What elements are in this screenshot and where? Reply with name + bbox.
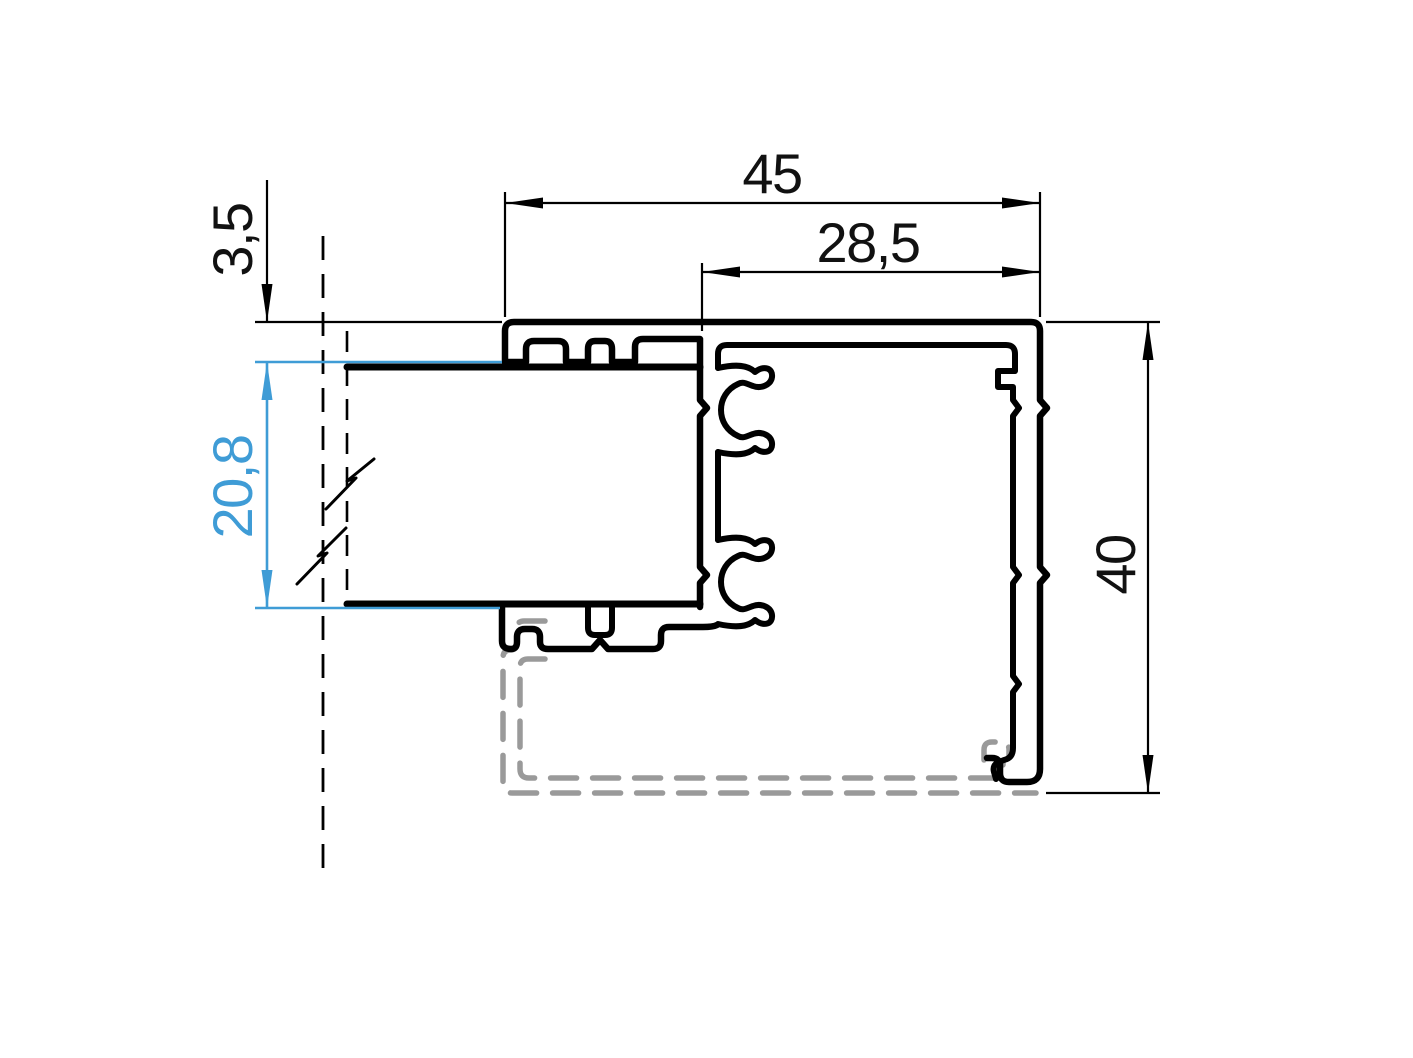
profile-outer-contour [505,322,1047,782]
phantom-inner-contour [520,659,1003,778]
screw-boss-lower [718,538,772,627]
aluminium-profile [502,322,1047,782]
break-mark-lower [297,528,346,584]
break-mark-upper [326,459,374,509]
arrowhead-right [1002,198,1040,209]
dimension-partial-width: 28,5 [702,211,1040,331]
screw-boss-upper [718,366,772,455]
glass-pane [297,367,700,604]
arrowhead-left [702,267,740,278]
dimension-label-glazing-thickness: 20,8 [201,436,264,539]
arrowhead-down [1143,755,1154,793]
dimension-label-overall-height: 40 [1084,535,1147,594]
dimension-overall-width: 45 [505,142,1040,317]
profile-cross-section-drawing: 45 28,5 3,5 20,8 40 [0,0,1413,1058]
arrowhead-left [505,198,543,209]
arrowhead-down [262,284,273,322]
dimension-label-overall-width: 45 [742,142,801,205]
screw-channel-slot [588,607,612,635]
dimension-overall-height: 40 [1046,322,1160,793]
arrowhead-right [1002,267,1040,278]
dimension-glazing-thickness: 20,8 [201,362,502,608]
dimension-label-top-offset: 3,5 [201,203,264,276]
chamber-inner-contour [718,345,1019,779]
technical-drawing-canvas: 45 28,5 3,5 20,8 40 [0,0,1413,1058]
arrowhead-up [1143,322,1154,360]
arrowhead-up [262,362,273,400]
dimension-label-partial-width: 28,5 [817,211,920,274]
dimension-top-offset: 3,5 [201,180,502,322]
arrowhead-down [262,570,273,608]
glazing-flange-castellations [505,339,707,607]
